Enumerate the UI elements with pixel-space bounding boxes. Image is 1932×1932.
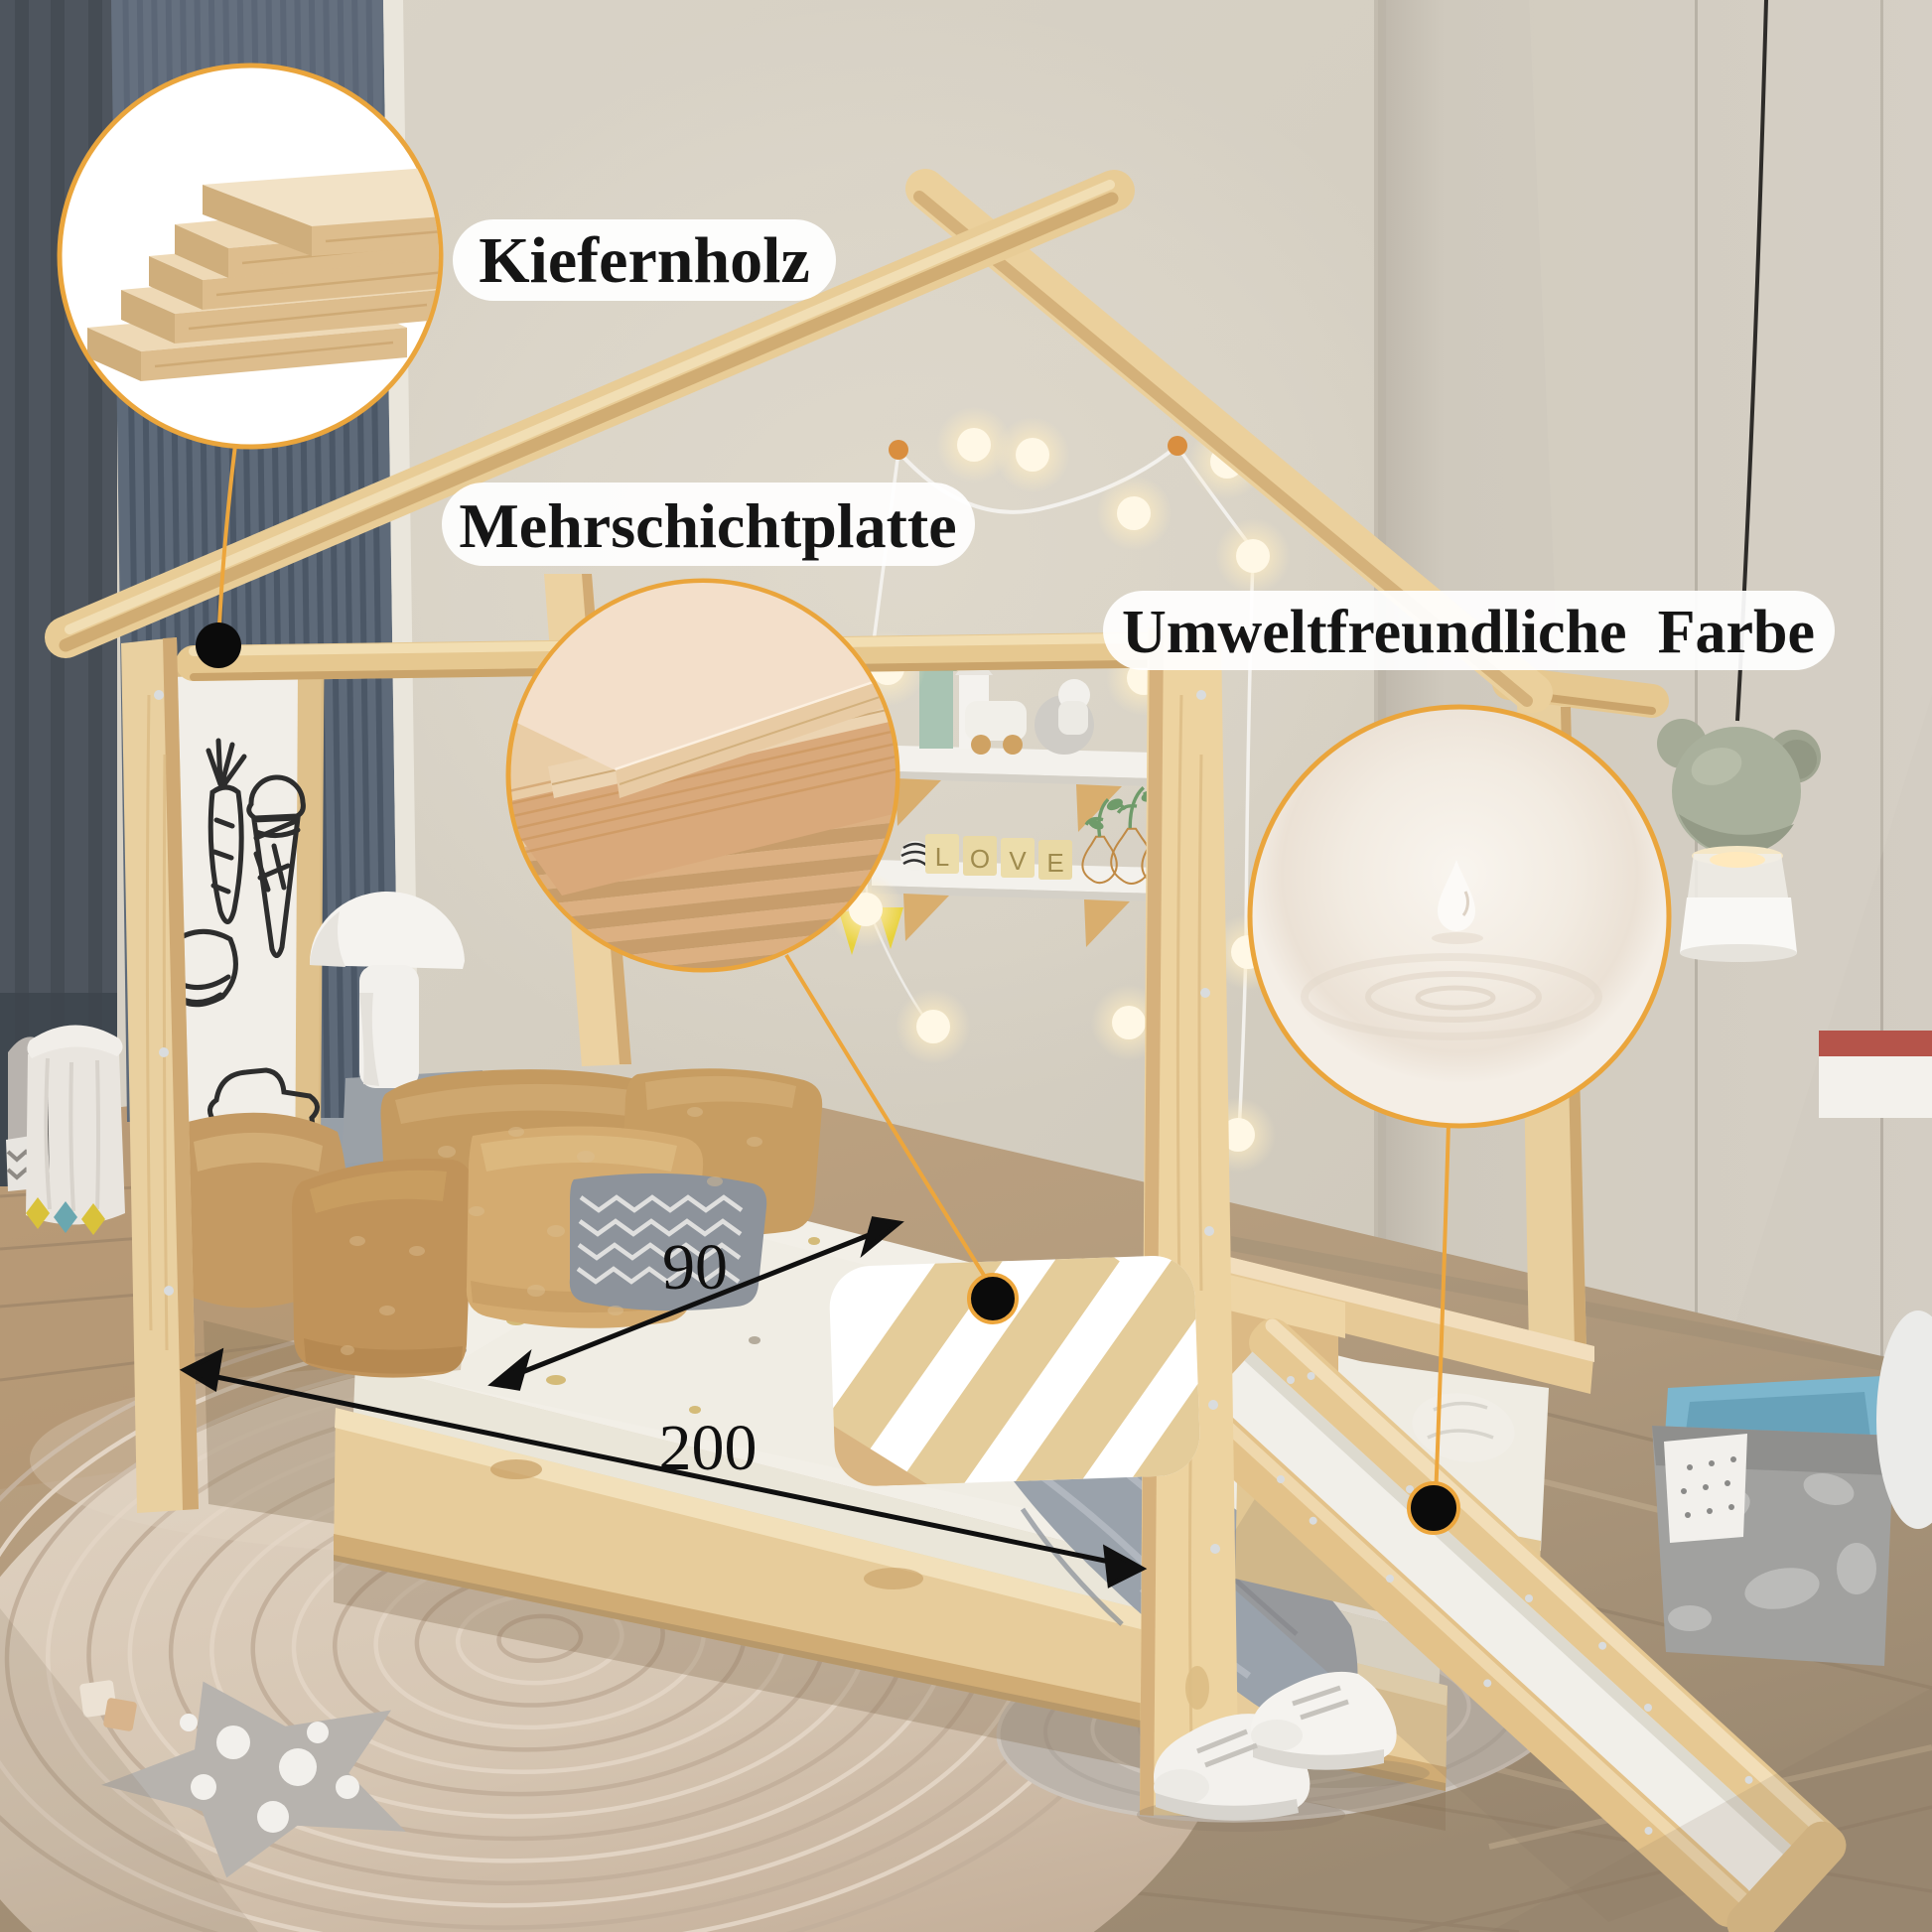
svg-text:E: E [1046,848,1063,878]
svg-text:V: V [1009,846,1027,876]
svg-text:O: O [970,844,990,874]
svg-text:L: L [935,842,949,872]
svg-text:Mehrschichtplatte: Mehrschichtplatte [459,490,956,561]
svg-text:200: 200 [659,1412,758,1484]
svg-text:Umweltfreundliche Farbe: Umweltfreundliche Farbe [1122,599,1815,666]
svg-text:90: 90 [662,1231,728,1304]
svg-text:Kiefernholz: Kiefernholz [479,224,810,297]
